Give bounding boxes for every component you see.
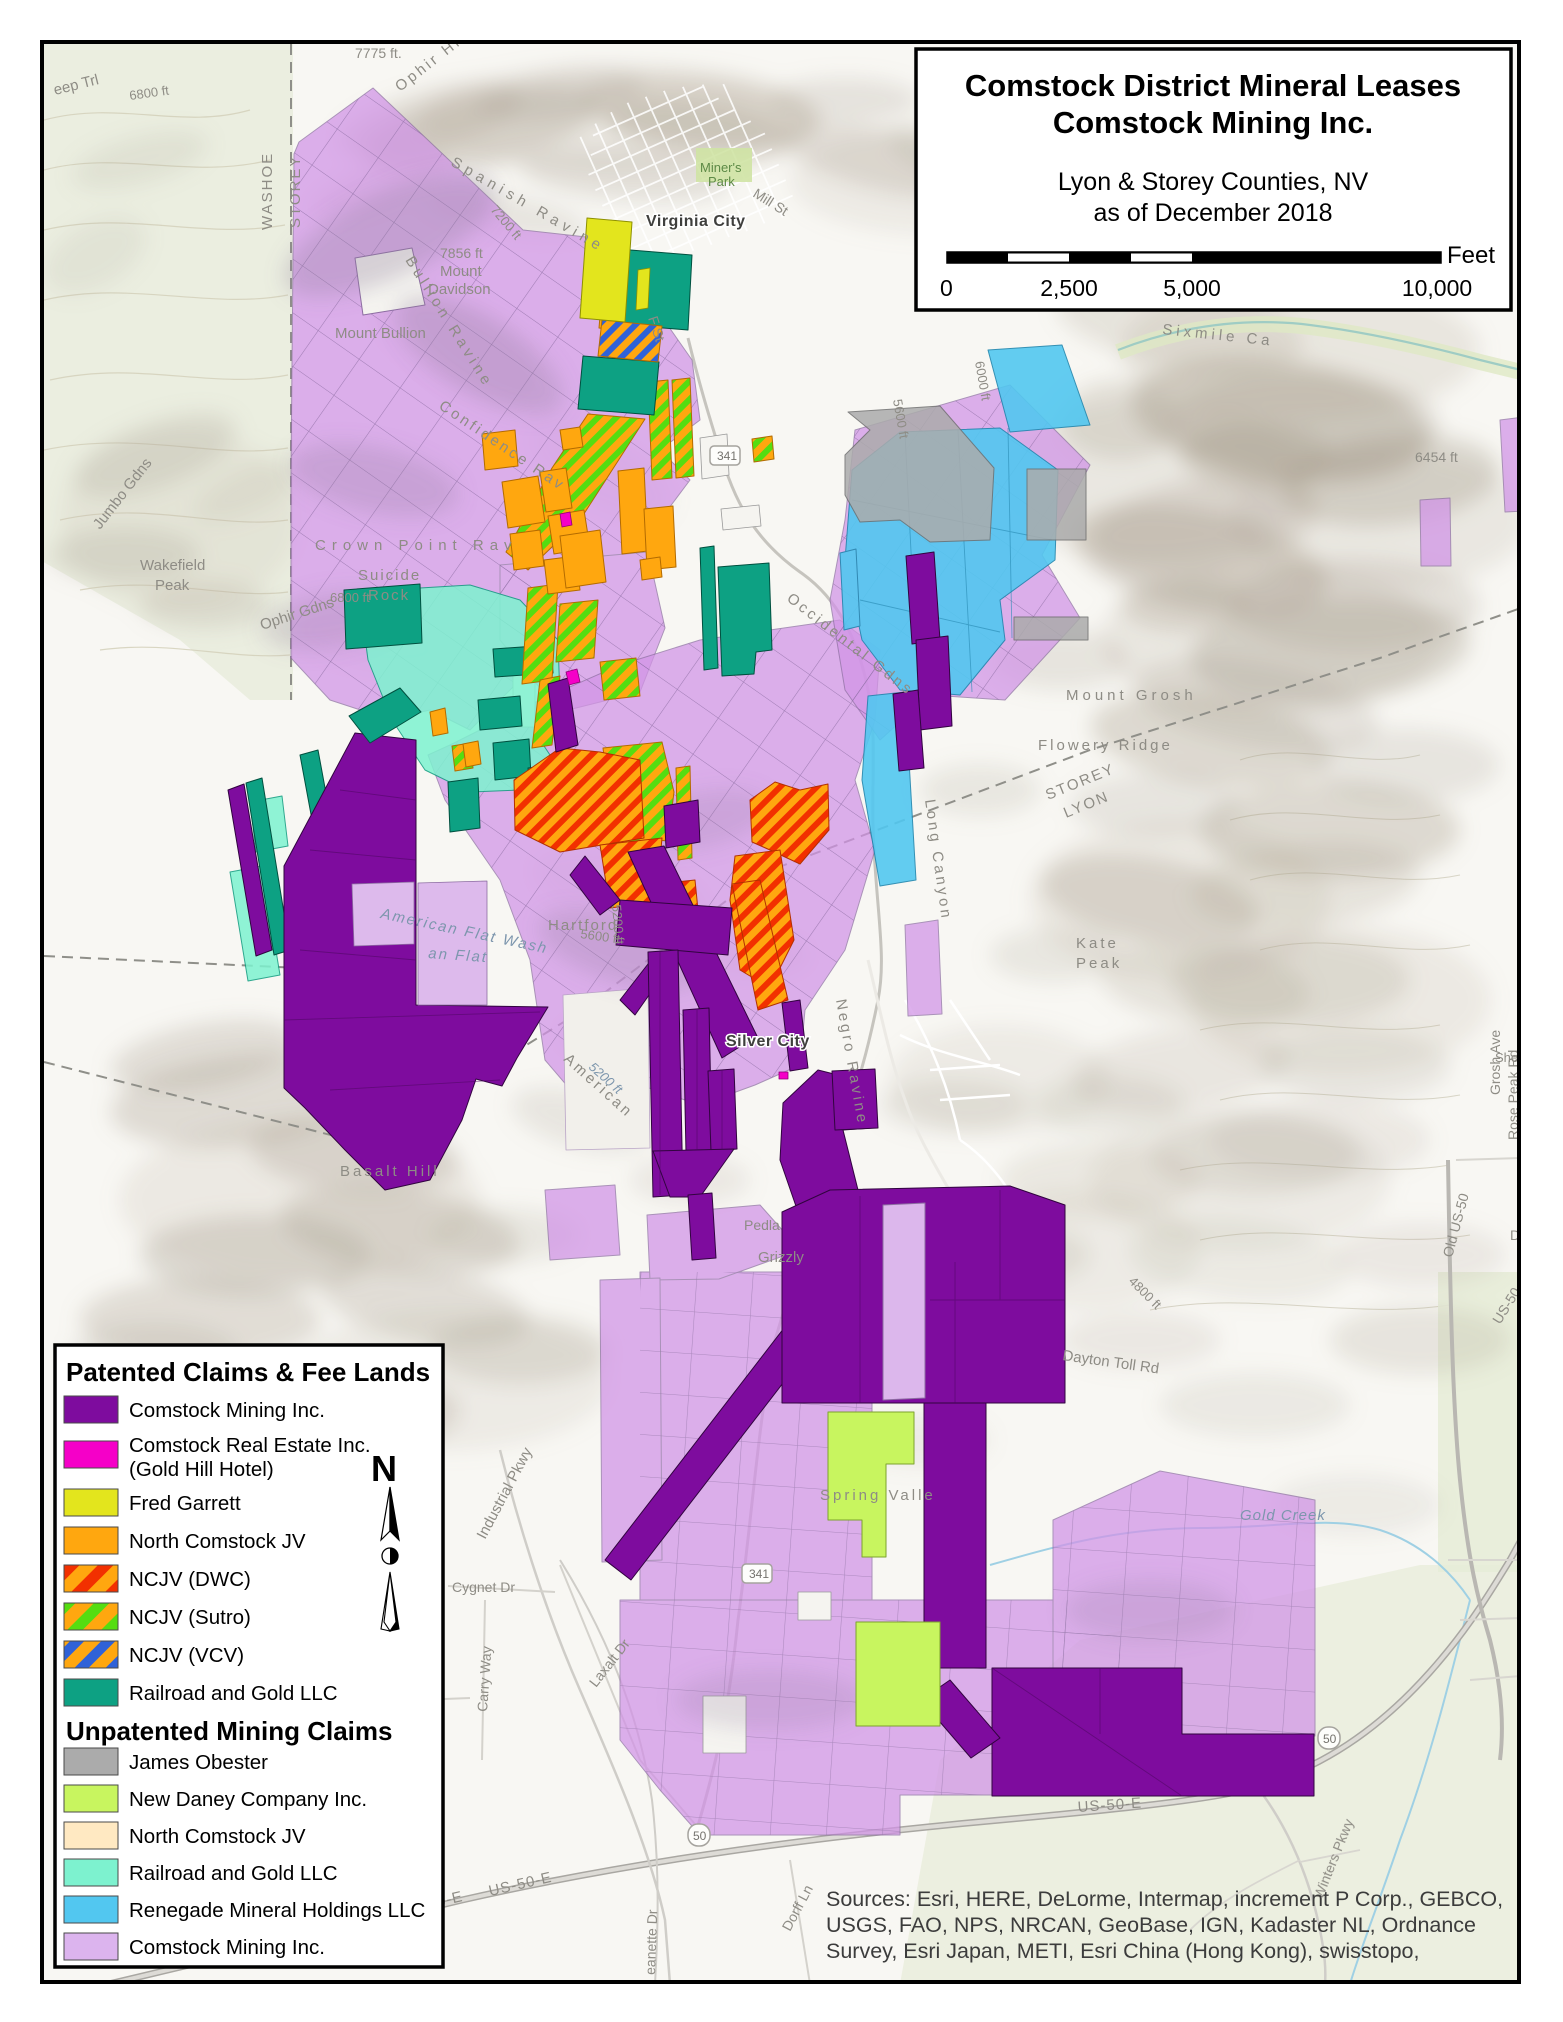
svg-text:Comstock Mining Inc.: Comstock Mining Inc. bbox=[129, 1399, 325, 1422]
svg-text:Unpatented Mining Claims: Unpatented Mining Claims bbox=[66, 1716, 392, 1746]
svg-text:Sources: Esri, HERE, DeLorme,: Sources: Esri, HERE, DeLorme, Intermap, … bbox=[826, 1887, 1503, 1911]
svg-text:NCJV (DWC): NCJV (DWC) bbox=[129, 1568, 251, 1591]
svg-text:7775 ft.: 7775 ft. bbox=[355, 45, 402, 61]
svg-text:Peak: Peak bbox=[1076, 955, 1122, 972]
svg-text:WASHOE: WASHOE bbox=[259, 152, 276, 230]
svg-text:Park: Park bbox=[708, 174, 735, 189]
svg-text:Silver City: Silver City bbox=[726, 1033, 810, 1050]
svg-text:North Comstock JV: North Comstock JV bbox=[129, 1825, 306, 1848]
svg-text:Railroad and Gold LLC: Railroad and Gold LLC bbox=[129, 1862, 338, 1885]
svg-text:Mount: Mount bbox=[440, 263, 483, 280]
svg-text:Virginia City: Virginia City bbox=[646, 213, 746, 230]
svg-text:Comstock Mining Inc.: Comstock Mining Inc. bbox=[1053, 105, 1373, 140]
svg-text:0: 0 bbox=[940, 275, 953, 301]
svg-text:N: N bbox=[371, 1448, 397, 1489]
svg-text:2,500: 2,500 bbox=[1040, 275, 1098, 301]
svg-text:50: 50 bbox=[693, 1829, 707, 1843]
svg-text:(Gold Hill Hotel): (Gold Hill Hotel) bbox=[129, 1458, 274, 1481]
svg-text:Grizzly: Grizzly bbox=[758, 1249, 804, 1266]
svg-text:NCJV (VCV): NCJV (VCV) bbox=[129, 1644, 244, 1667]
svg-text:She: She bbox=[1495, 1050, 1518, 1065]
svg-text:STOREY: STOREY bbox=[287, 155, 304, 228]
svg-text:Railroad and Gold LLC: Railroad and Gold LLC bbox=[129, 1682, 338, 1705]
svg-text:NCJV (Sutro): NCJV (Sutro) bbox=[129, 1606, 251, 1629]
svg-text:Cygnet Dr: Cygnet Dr bbox=[452, 1579, 515, 1595]
svg-text:Flowery Ridge: Flowery Ridge bbox=[1038, 737, 1173, 754]
svg-text:Rock: Rock bbox=[368, 587, 410, 604]
svg-text:Renegade Mineral Holdings LLC: Renegade Mineral Holdings LLC bbox=[129, 1899, 425, 1922]
svg-text:as of December 2018: as of December 2018 bbox=[1093, 199, 1332, 227]
svg-text:Basalt Hill: Basalt Hill bbox=[340, 1163, 440, 1180]
svg-text:341: 341 bbox=[717, 449, 737, 463]
svg-text:10,000: 10,000 bbox=[1402, 275, 1472, 301]
svg-text:Kate: Kate bbox=[1076, 935, 1119, 952]
svg-text:New Daney Company Inc.: New Daney Company Inc. bbox=[129, 1788, 367, 1811]
svg-text:Spring Valle: Spring Valle bbox=[820, 1487, 936, 1504]
svg-text:341: 341 bbox=[749, 1567, 769, 1581]
svg-text:Crown Point Rav: Crown Point Rav bbox=[315, 537, 518, 554]
svg-text:Wakefield: Wakefield bbox=[140, 557, 205, 574]
svg-text:Mount Grosh: Mount Grosh bbox=[1066, 687, 1197, 704]
svg-text:50: 50 bbox=[1323, 1732, 1337, 1746]
svg-text:Feet: Feet bbox=[1447, 242, 1495, 269]
svg-text:Suicide: Suicide bbox=[358, 567, 421, 584]
svg-text:Fred Garrett: Fred Garrett bbox=[129, 1492, 241, 1515]
svg-text:Pedla: Pedla bbox=[744, 1217, 780, 1233]
svg-text:Gold Creek: Gold Creek bbox=[1240, 1507, 1326, 1524]
svg-text:6800 ft: 6800 ft bbox=[330, 590, 370, 605]
svg-text:Comstock Real Estate Inc.: Comstock Real Estate Inc. bbox=[129, 1434, 371, 1457]
svg-text:5,000: 5,000 bbox=[1163, 275, 1221, 301]
svg-text:Patented Claims & Fee Lands: Patented Claims & Fee Lands bbox=[66, 1357, 430, 1387]
svg-text:7856 ft: 7856 ft bbox=[440, 245, 483, 261]
svg-text:eanette Dr: eanette Dr bbox=[642, 1909, 660, 1975]
svg-text:Comstock Mining Inc.: Comstock Mining Inc. bbox=[129, 1936, 325, 1959]
svg-text:Survey, Esri Japan, METI, Esri: Survey, Esri Japan, METI, Esri China (Ho… bbox=[826, 1939, 1419, 1963]
svg-text:Comstock District Mineral Leas: Comstock District Mineral Leases bbox=[965, 68, 1461, 103]
svg-text:James Obester: James Obester bbox=[129, 1751, 268, 1774]
svg-text:USGS, FAO, NPS, NRCAN, GeoBase: USGS, FAO, NPS, NRCAN, GeoBase, IGN, Kad… bbox=[826, 1913, 1476, 1937]
svg-text:North Comstock JV: North Comstock JV bbox=[129, 1530, 306, 1553]
svg-text:Lyon & Storey Counties, NV: Lyon & Storey Counties, NV bbox=[1058, 168, 1369, 196]
svg-text:Peak: Peak bbox=[155, 577, 190, 594]
svg-text:6454 ft: 6454 ft bbox=[1415, 449, 1458, 465]
svg-text:Miner's: Miner's bbox=[700, 160, 742, 175]
svg-text:Mount Bullion: Mount Bullion bbox=[335, 325, 426, 342]
